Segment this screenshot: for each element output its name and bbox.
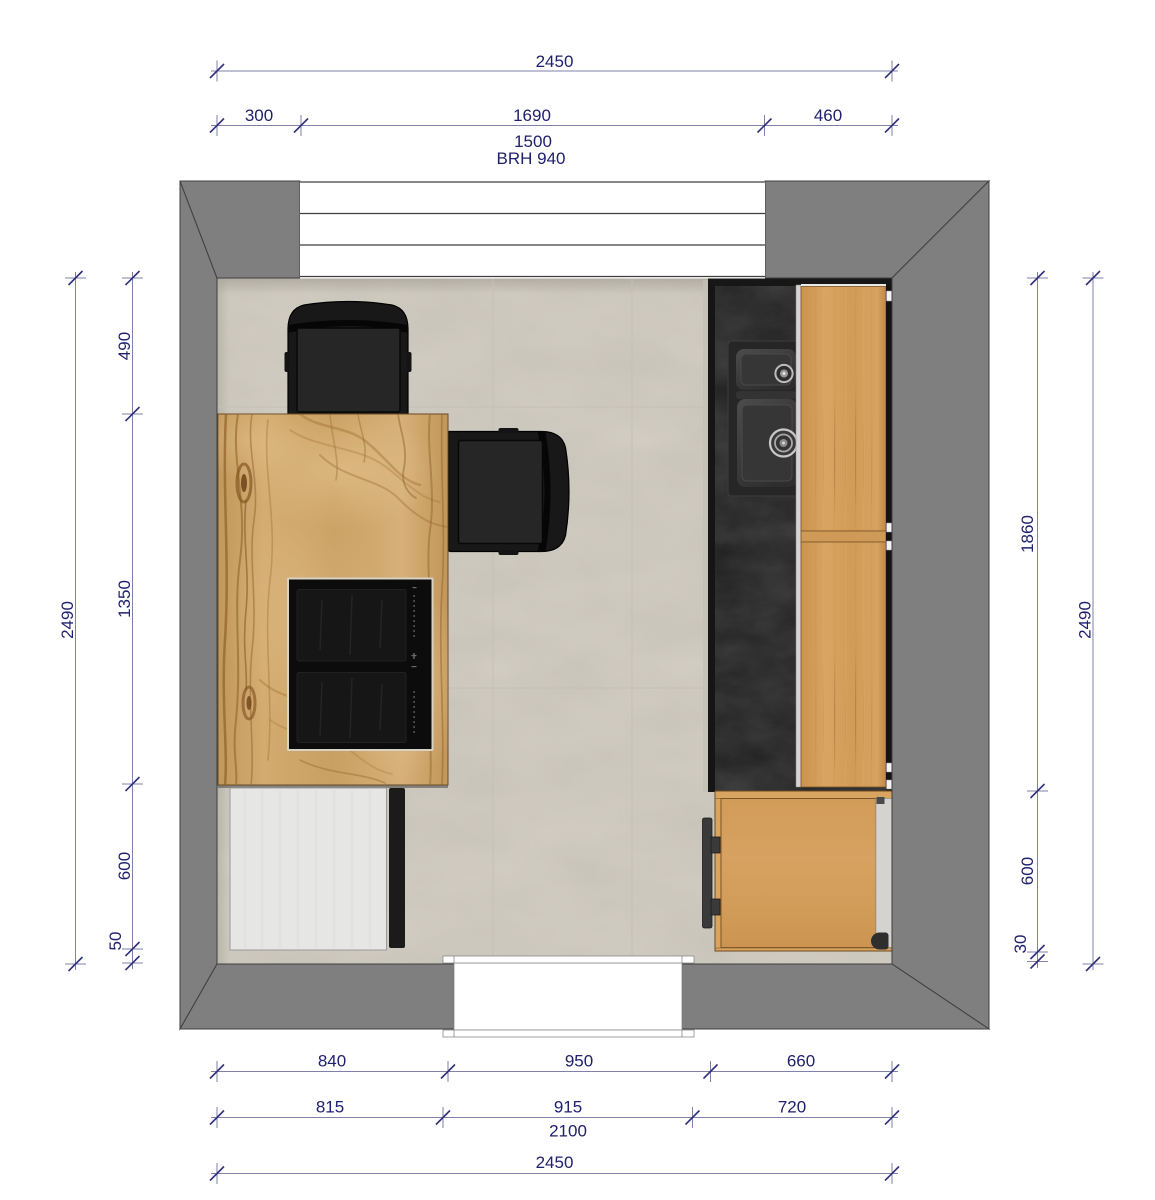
svg-text:2490: 2490	[58, 601, 77, 639]
svg-text:30: 30	[1011, 935, 1030, 954]
svg-text:950: 950	[565, 1052, 593, 1071]
svg-text:300: 300	[245, 106, 273, 125]
svg-text:840: 840	[318, 1052, 346, 1071]
svg-text:600: 600	[115, 852, 134, 880]
svg-text:460: 460	[814, 106, 842, 125]
svg-text:2450: 2450	[536, 1153, 574, 1172]
svg-text:2490: 2490	[1076, 601, 1095, 639]
svg-text:50: 50	[106, 932, 125, 951]
svg-text:1350: 1350	[115, 580, 134, 618]
svg-text:600: 600	[1018, 857, 1037, 885]
svg-text:1860: 1860	[1018, 515, 1037, 553]
svg-text:490: 490	[115, 332, 134, 360]
svg-text:1690: 1690	[513, 106, 551, 125]
svg-text:BRH 940: BRH 940	[497, 149, 566, 168]
svg-text:2100: 2100	[549, 1122, 587, 1141]
svg-text:815: 815	[316, 1098, 344, 1117]
svg-text:720: 720	[778, 1098, 806, 1117]
svg-text:915: 915	[554, 1098, 582, 1117]
svg-text:660: 660	[787, 1052, 815, 1071]
svg-text:2450: 2450	[536, 52, 574, 71]
